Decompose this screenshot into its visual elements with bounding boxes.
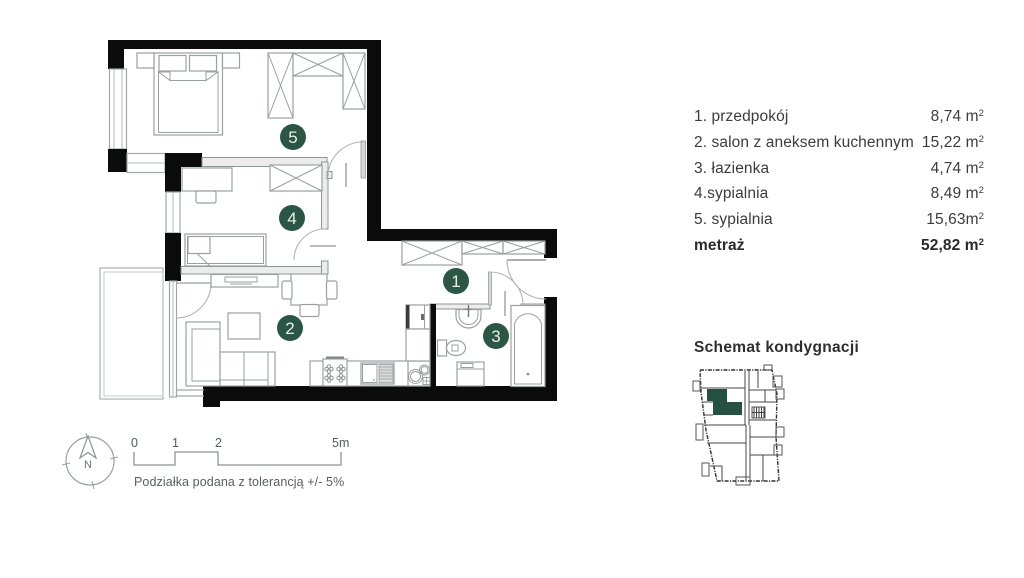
- svg-text:4,74 m2: 4,74 m2: [931, 160, 984, 177]
- svg-text:Schemat kondygnacji: Schemat kondygnacji: [694, 339, 859, 356]
- svg-text:52,82 m2: 52,82 m2: [921, 237, 984, 254]
- svg-text:4: 4: [287, 209, 296, 228]
- svg-text:8,49 m2: 8,49 m2: [931, 185, 984, 202]
- svg-text:4.sypialnia: 4.sypialnia: [694, 185, 769, 202]
- svg-text:N: N: [84, 459, 92, 471]
- svg-text:metraż: metraż: [694, 237, 745, 254]
- svg-text:2. salon z aneksem kuchennym: 2. salon z aneksem kuchennym: [694, 134, 914, 151]
- svg-text:Podziałka podana z tolerancją: Podziałka podana z tolerancją +/- 5%: [134, 475, 344, 489]
- svg-text:1. przedpokój: 1. przedpokój: [694, 108, 788, 125]
- svg-text:5m: 5m: [332, 436, 349, 450]
- svg-text:3. łazienka: 3. łazienka: [694, 160, 769, 177]
- svg-text:8,74 m2: 8,74 m2: [931, 108, 984, 125]
- svg-text:1: 1: [451, 272, 460, 291]
- svg-text:0: 0: [131, 436, 138, 450]
- svg-text:3: 3: [491, 327, 500, 346]
- svg-text:5. sypialnia: 5. sypialnia: [694, 211, 773, 228]
- svg-text:1: 1: [172, 436, 179, 450]
- svg-text:15,22 m2: 15,22 m2: [922, 134, 984, 151]
- svg-text:15,63m2: 15,63m2: [926, 211, 984, 228]
- svg-text:2: 2: [285, 319, 294, 338]
- svg-text:5: 5: [288, 128, 297, 147]
- svg-text:2: 2: [215, 436, 222, 450]
